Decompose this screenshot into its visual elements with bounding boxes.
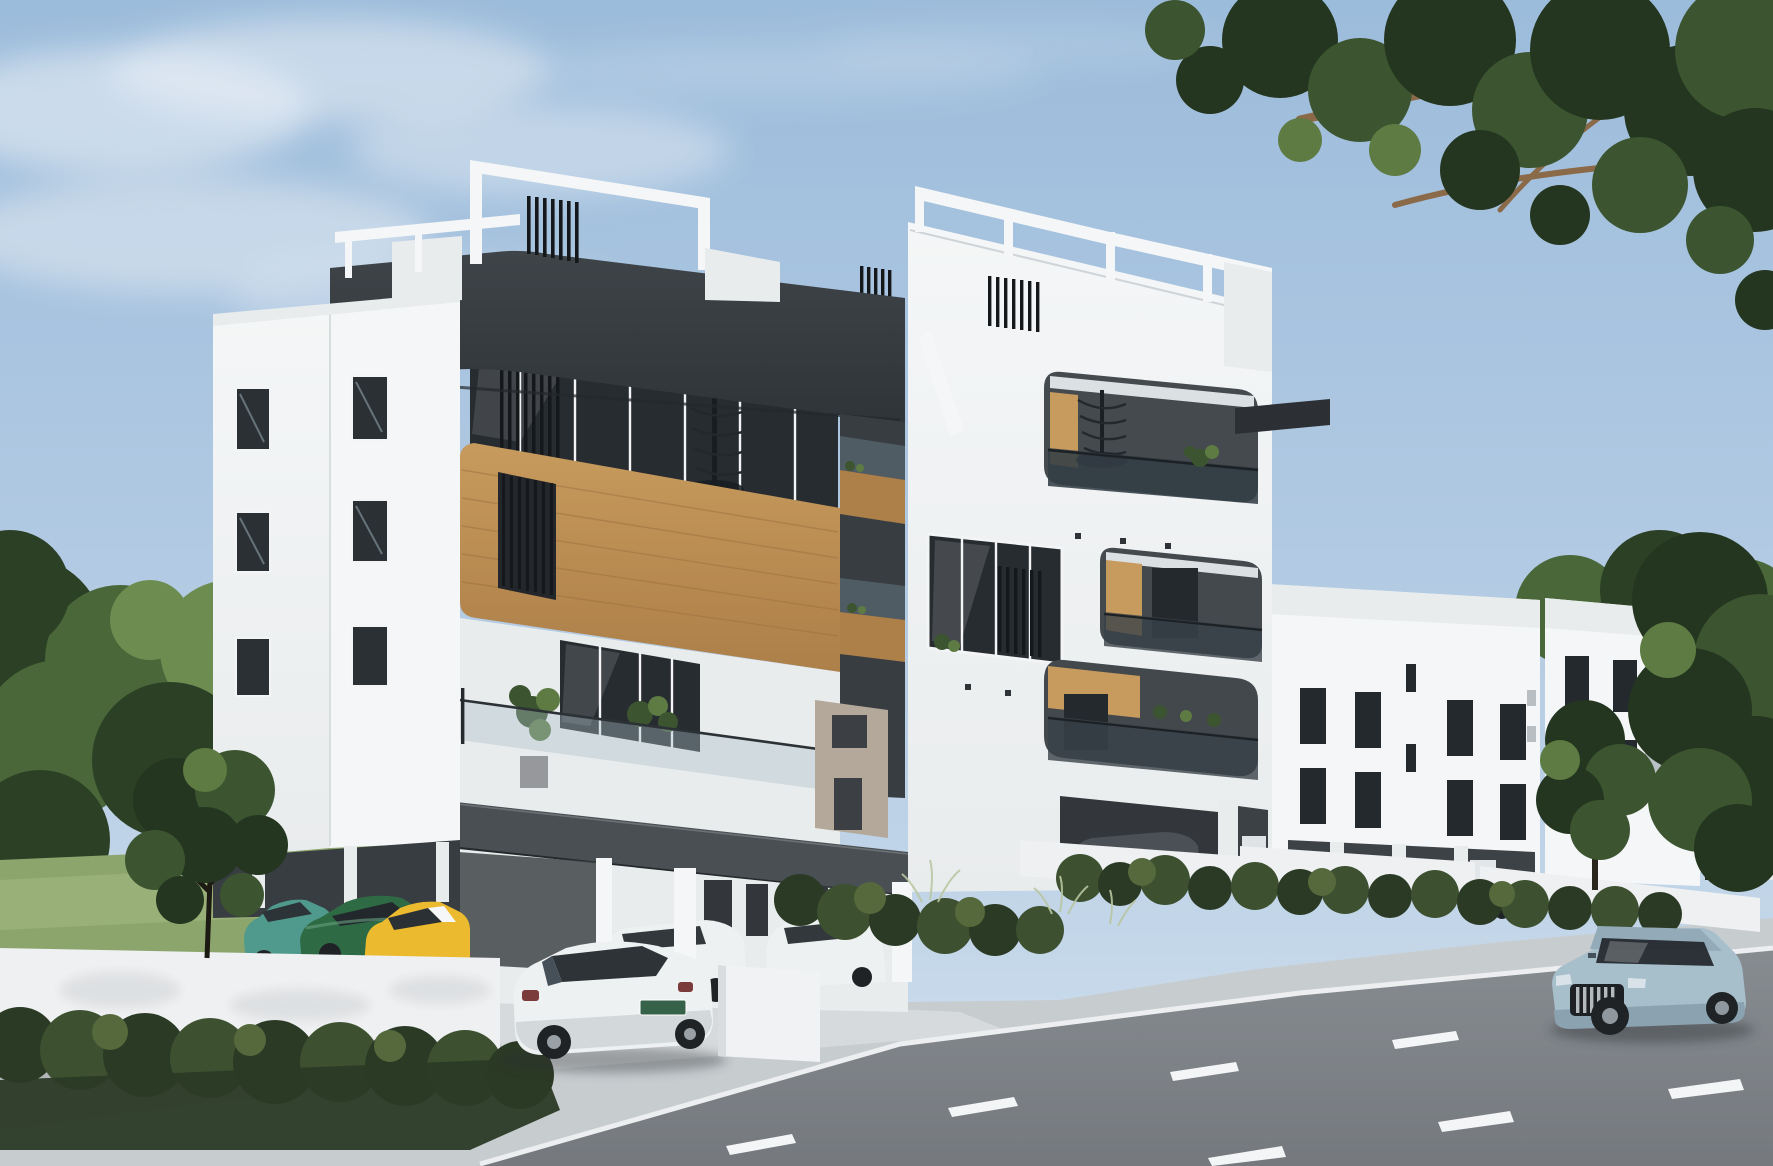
- top-floor-balcony-cutout: [1044, 372, 1258, 504]
- lower-floor-balcony-cutout: [1044, 660, 1258, 780]
- neighbor-building-1: [1268, 584, 1540, 888]
- mid-floor-balcony-cutout: [1100, 548, 1262, 662]
- render-image: [0, 0, 1773, 1166]
- service-block: [815, 700, 888, 838]
- wall-panel: [718, 965, 820, 1062]
- main-building-right-wing: [860, 186, 1330, 892]
- mid-floor-glass-doors: [928, 534, 1062, 664]
